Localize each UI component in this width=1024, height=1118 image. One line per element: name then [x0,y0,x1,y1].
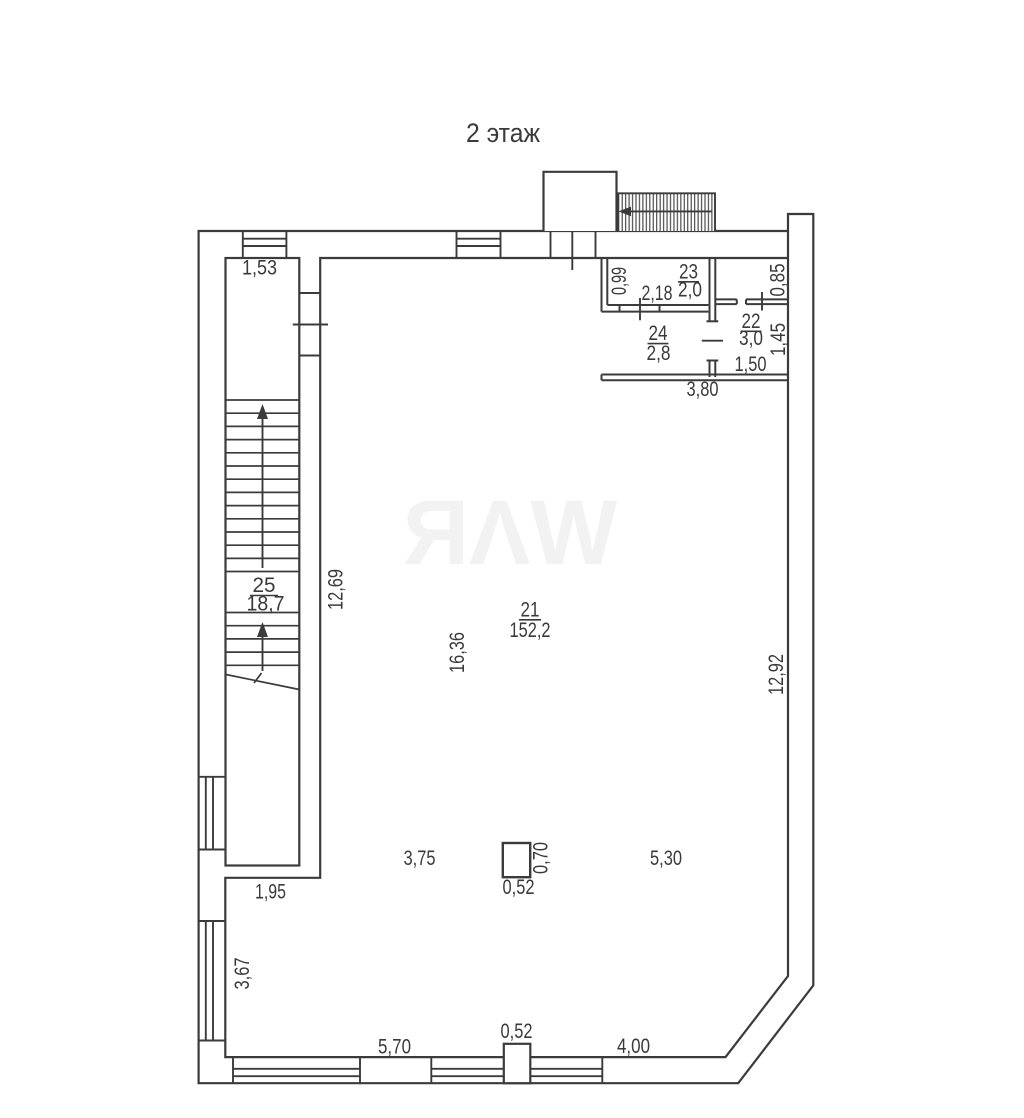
svg-text:2,0: 2,0 [678,279,702,302]
svg-text:1,53: 1,53 [242,257,277,280]
svg-text:12,92: 12,92 [765,654,788,695]
svg-text:0,85: 0,85 [767,264,790,297]
svg-text:1,50: 1,50 [735,353,767,376]
svg-text:4,00: 4,00 [617,1035,650,1058]
svg-text:5,30: 5,30 [650,847,682,870]
svg-text:18,7: 18,7 [247,593,285,616]
svg-text:3,75: 3,75 [404,847,436,870]
svg-text:0,52: 0,52 [503,876,535,899]
svg-text:16,36: 16,36 [446,632,469,673]
svg-text:0,52: 0,52 [501,1020,533,1043]
svg-text:0,99: 0,99 [608,267,631,295]
svg-text:ЯΛW: ЯΛW [403,482,617,584]
svg-text:2,18: 2,18 [642,282,673,305]
svg-text:2 этаж: 2 этаж [466,118,540,148]
svg-text:12,69: 12,69 [325,569,348,610]
svg-text:1,95: 1,95 [255,881,286,904]
svg-text:1,45: 1,45 [767,323,790,356]
svg-text:3,80: 3,80 [687,378,719,401]
svg-text:3,0: 3,0 [739,327,763,350]
svg-text:5,70: 5,70 [378,1036,411,1059]
svg-text:2,8: 2,8 [647,342,671,365]
svg-text:152,2: 152,2 [510,619,551,642]
svg-text:0,70: 0,70 [530,842,553,874]
svg-text:3,67: 3,67 [231,958,254,990]
